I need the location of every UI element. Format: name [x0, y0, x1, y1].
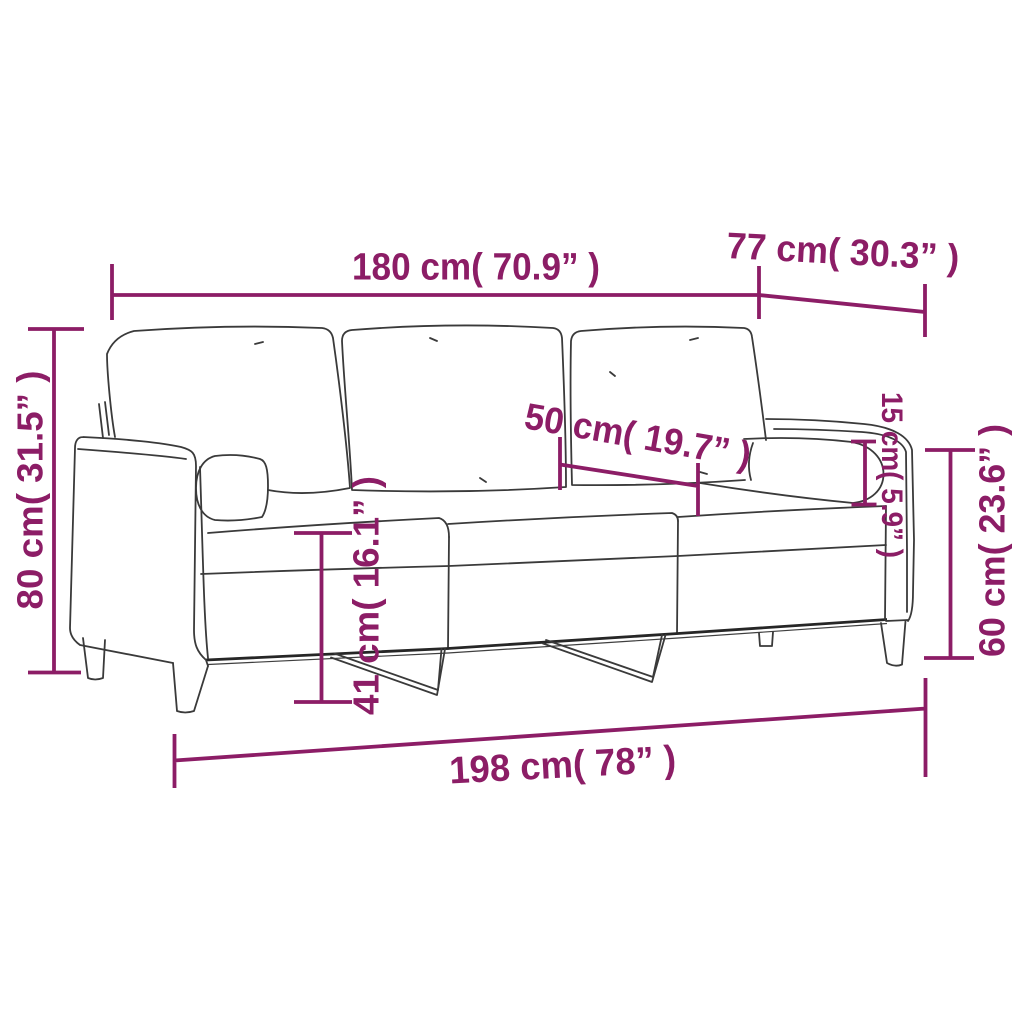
svg-text:41 cm( 16.1” ): 41 cm( 16.1” ) — [346, 476, 387, 715]
svg-text:80 cm( 31.5” ): 80 cm( 31.5” ) — [10, 371, 51, 610]
svg-text:60 cm( 23.6” ): 60 cm( 23.6” ) — [972, 424, 1013, 657]
svg-text:15 cm( 5.9” ): 15 cm( 5.9” ) — [875, 392, 908, 558]
svg-text:180 cm( 70.9” ): 180 cm( 70.9” ) — [352, 247, 600, 289]
